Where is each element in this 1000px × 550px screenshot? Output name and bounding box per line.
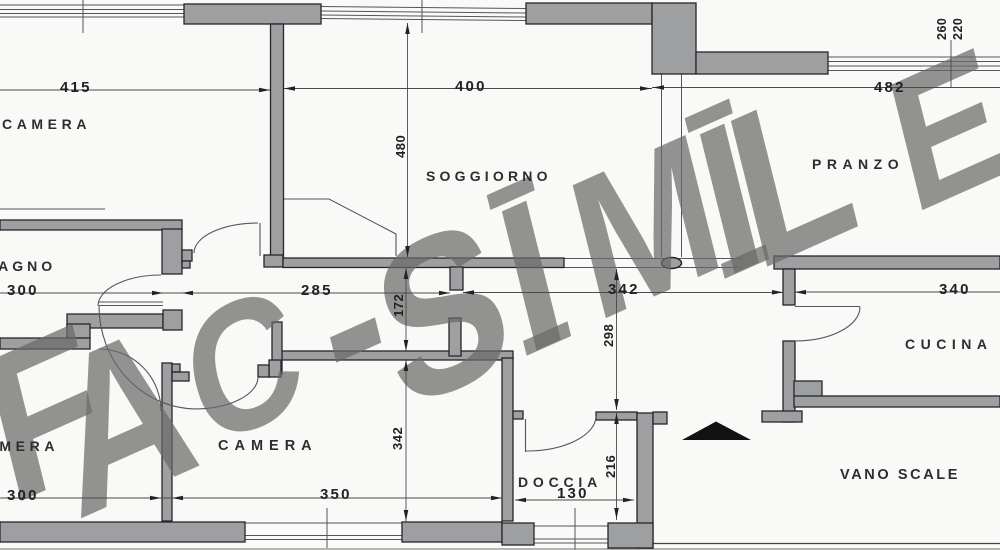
svg-text:342: 342	[390, 427, 405, 450]
svg-text:300: 300	[7, 487, 39, 504]
svg-text:CUCINA: CUCINA	[905, 336, 992, 352]
svg-text:BAGNO: BAGNO	[0, 258, 56, 274]
svg-text:400: 400	[455, 78, 487, 95]
svg-text:350: 350	[320, 486, 352, 503]
svg-text:285: 285	[301, 282, 333, 299]
svg-text:CAMERA: CAMERA	[218, 438, 318, 454]
svg-text:340: 340	[939, 281, 971, 298]
svg-text:172: 172	[391, 294, 406, 317]
svg-text:SOGGIORNO: SOGGIORNO	[426, 168, 552, 184]
svg-text:480: 480	[393, 135, 408, 158]
svg-text:482: 482	[874, 79, 906, 96]
svg-text:130: 130	[557, 485, 589, 502]
svg-text:298: 298	[601, 324, 616, 347]
svg-text:300: 300	[7, 282, 39, 299]
svg-text:VANO SCALE: VANO SCALE	[840, 467, 960, 483]
svg-text:342: 342	[608, 281, 640, 298]
svg-text:415: 415	[60, 79, 92, 96]
svg-text:CAMERA: CAMERA	[2, 116, 91, 132]
svg-text:220: 220	[951, 18, 965, 40]
svg-text:CAMERA: CAMERA	[0, 438, 59, 454]
svg-text:260: 260	[935, 18, 949, 40]
svg-text:PRANZO: PRANZO	[812, 156, 904, 172]
svg-text:216: 216	[603, 455, 618, 478]
